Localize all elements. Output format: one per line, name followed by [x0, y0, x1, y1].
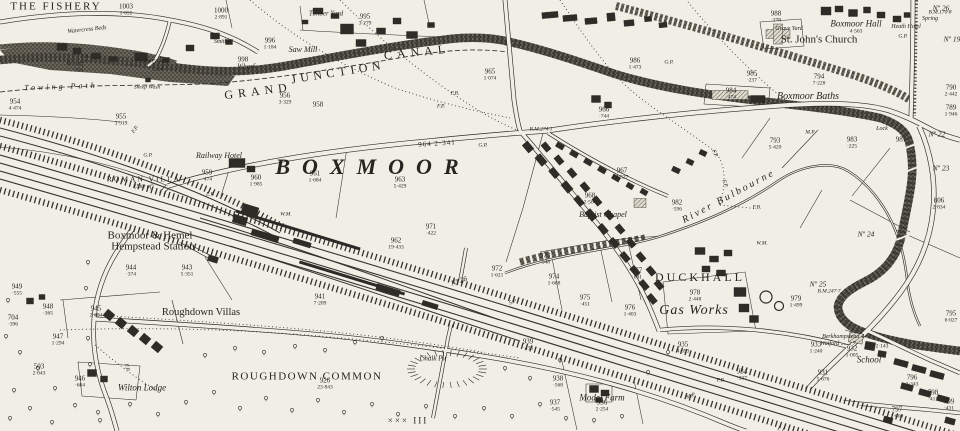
map-label-sheep-wash: Sheep Wash: [134, 85, 160, 91]
map-label-river-bulbourne: River Bulbourne: [681, 168, 777, 226]
map-label-f-p: F.P.: [710, 149, 718, 159]
map-label-f-p: F.P.: [437, 104, 445, 110]
map-label-spring: Spring: [922, 16, 938, 22]
map-label-931: 9315·676: [817, 369, 830, 383]
os-map-sheet: THE FISHERYGRANDJUNCTIONCANALBOXMOORROUG…: [0, 0, 960, 431]
map-label-m-p: M.P: [686, 393, 697, 401]
map-label-wharf: Wharf: [237, 64, 255, 71]
map-label-school: School: [857, 356, 882, 365]
map-label-2-143: 2·143: [876, 344, 889, 350]
map-label-949: 949·555: [12, 283, 23, 297]
map-label-794: 7947·228: [813, 73, 826, 87]
map-label-f-p: F.P.: [122, 363, 129, 372]
map-label-966: 966·744: [599, 106, 610, 120]
map-label-938: 938·568: [553, 375, 564, 389]
map-label-985: 985·237: [747, 70, 758, 84]
map-label-f-p: F.P.: [720, 179, 728, 188]
map-label-f-b: F.B.: [81, 54, 90, 60]
map-label-g-p: G.P.: [664, 60, 673, 66]
map-label-974: 9741·668: [548, 273, 561, 287]
map-label-978: 9782·448: [689, 289, 702, 303]
map-label-4-563: 4·563: [850, 29, 863, 35]
map-label-932: 9321·005: [846, 345, 859, 359]
map-label-995: 9953·279: [359, 13, 372, 27]
map-label-704: 704·396: [8, 314, 19, 328]
map-label-wilton-lodge: Wilton Lodge: [118, 384, 166, 393]
map-label-lock: Lock: [876, 126, 888, 132]
map-label-984: 984·474: [726, 87, 737, 101]
map-label-hempstead-station: Hempstead Station: [111, 242, 194, 253]
map-label-939: 939·433: [523, 338, 534, 352]
map-label-941: 9417·209: [314, 293, 327, 307]
map-label-975: 975·451: [580, 294, 591, 308]
map-label-the-fishery: THE FISHERY: [10, 2, 101, 13]
map-label-timber-yard: Timber Yard: [309, 11, 343, 18]
map-label-lock: Lock: [152, 67, 164, 73]
map-label-roughdown-villas: Roughdown Villas: [162, 308, 240, 319]
map-label-boxmoor-baths: Boxmoor Baths: [777, 92, 839, 102]
map-label-968: 9682·564: [584, 192, 597, 206]
map-label-g-p: G.P.: [898, 34, 907, 40]
map-label-943: 9435·351: [181, 264, 194, 278]
map-label-roman-villa: ROMAN VILLA: [107, 175, 181, 183]
map-label-986: 9861·473: [629, 57, 642, 71]
map-label-f-p: F.P.: [131, 125, 140, 135]
map-label-503: 5032·043: [33, 363, 46, 377]
map-label-947: 9471·294: [52, 333, 65, 347]
map-label-795: 7956·027: [945, 310, 958, 324]
map-label-n-24: Nº 24: [858, 230, 875, 238]
map-label-981: 981: [896, 137, 907, 144]
map-label-junction: JUNCTION: [290, 59, 385, 86]
map-label-saw-mill: Saw Mill: [289, 46, 318, 54]
map-label-towing-path: Towing Path: [24, 82, 98, 93]
map-label-smithy: Smithy: [214, 39, 230, 45]
map-label-937: 937·545: [550, 399, 561, 413]
map-label-965: 9651·074: [484, 68, 497, 82]
map-label-959: 959·474: [202, 169, 213, 183]
map-label-977: 977·041: [632, 267, 643, 281]
map-label-935: 9354·693: [677, 341, 690, 355]
map-label-973: 973·548: [540, 252, 551, 266]
map-label-f-b: F.B.: [451, 91, 460, 97]
map-label-797: 7971·600: [891, 406, 904, 420]
map-label-m-p: M.P: [805, 130, 814, 136]
map-label-canal: CANAL: [383, 43, 450, 62]
map-label-s-p: S.P: [509, 299, 518, 307]
map-label-936: 9362·254: [596, 399, 609, 413]
map-label-f-b: F.B.: [753, 205, 762, 211]
map-label-b-m-274-1: B.M.274·1: [529, 127, 552, 133]
map-label-793: 7935·420: [769, 137, 782, 151]
map-label-934: 934·337: [737, 368, 748, 382]
map-label-961: 9611·684: [309, 170, 322, 184]
map-label-n-23: Nº 23: [933, 164, 950, 172]
map-label-967: 9674·527: [616, 167, 629, 181]
map-label-fishery-inn: Fishery Inn: [136, 58, 168, 65]
map-label-799: 799·431: [944, 398, 955, 412]
map-label-790: 7902·442: [945, 84, 958, 98]
map-label-983: 983·225: [847, 136, 858, 150]
map-label-356: ·356: [73, 68, 83, 74]
map-label-964-2-341: 964 2·341: [418, 139, 456, 149]
map-label-chalk-pit: Chalk Pit: [420, 356, 447, 363]
map-label-972: 9721·621: [491, 265, 504, 279]
map-label-roughdown-common: ROUGHDOWN COMMON: [232, 372, 383, 383]
map-label-789: 7891·946: [945, 104, 958, 118]
map-label-806: 8062·834: [933, 197, 946, 211]
map-label-site-of: (Site of): [134, 184, 153, 190]
map-label-w-m: W.M.: [280, 212, 291, 218]
map-label-976: 9761·403: [624, 304, 637, 318]
map-label-946: 946·684: [75, 375, 86, 389]
map-label-railway-hotel: Railway Hotel: [196, 152, 242, 160]
map-label-g-p: G.P.: [143, 153, 152, 159]
map-label-berkhampstead-4: Berkhampstead 4: [822, 334, 864, 340]
map-label-988: 988·278: [771, 10, 782, 24]
map-label-heath-hotel: Heath Hotel: [891, 24, 921, 30]
map-label-933: 9331·240: [810, 341, 823, 355]
map-label-f-b: F.B.: [717, 378, 726, 384]
map-label-duckhall: DUCKHALL: [655, 271, 745, 283]
map-label-grave-yard: Grave Yard: [775, 26, 802, 32]
map-label-n-22: Nº 22: [929, 130, 946, 138]
map-label-iii: ××× III: [388, 417, 428, 426]
map-label-n-26: Nº 26: [450, 275, 468, 288]
map-label-n-19: Nº 19: [944, 35, 960, 43]
map-label-955: 9553·919: [115, 113, 128, 127]
map-label-971: 971·422: [426, 223, 437, 237]
map-label-1003: 10031·055: [119, 3, 133, 17]
map-label-gas-works: Gas Works: [659, 304, 729, 318]
map-label-979: 9791·499: [790, 295, 803, 309]
map-label-982: 982·596: [672, 199, 683, 213]
map-label-w-m: W.M.: [756, 241, 767, 247]
map-label-g-p: G.P.: [478, 143, 487, 149]
map-label-963: 9635·429: [394, 176, 407, 190]
map-label-b-m-247-7: B.M.247·7: [817, 289, 840, 295]
map-label-b-m-170-8: B.M.170·8: [928, 10, 951, 16]
map-label-944: 944·374: [126, 264, 137, 278]
map-label-watercress-beds: Watercress Beds: [67, 25, 107, 35]
map-label-1000: 10002·891: [214, 7, 228, 21]
map-label-baptist-chapel: Baptist Chapel: [579, 211, 627, 219]
map-label-798: 798·411: [928, 389, 939, 403]
map-label-956: 9563·329: [279, 92, 292, 106]
map-label-996: 9961·184: [264, 37, 277, 51]
map-label-948: 948·365: [43, 303, 54, 317]
map-label-l-b: L.B: [206, 192, 214, 198]
map-label-n-25: Nº 25: [810, 280, 827, 288]
map-label-st-john-s-church: St. John's Church: [781, 35, 858, 46]
map-label-boxmoor: BOXMOOR: [275, 156, 470, 178]
map-label-998: 998: [238, 57, 249, 64]
map-label-945: 9452·684: [90, 305, 103, 319]
map-label-960: 9601·985: [250, 174, 263, 188]
map-label-boxmoor-hall: Boxmoor Hall: [830, 20, 881, 29]
map-label-958: 958: [313, 102, 324, 109]
map-label-796: 7962·343: [906, 374, 919, 388]
map-label-954: 9544·474: [9, 98, 22, 112]
map-label-962: 96219·433: [388, 237, 404, 251]
map-labels: THE FISHERYGRANDJUNCTIONCANALBOXMOORROUG…: [0, 0, 960, 431]
map-label-926: 92623·843: [317, 377, 333, 391]
